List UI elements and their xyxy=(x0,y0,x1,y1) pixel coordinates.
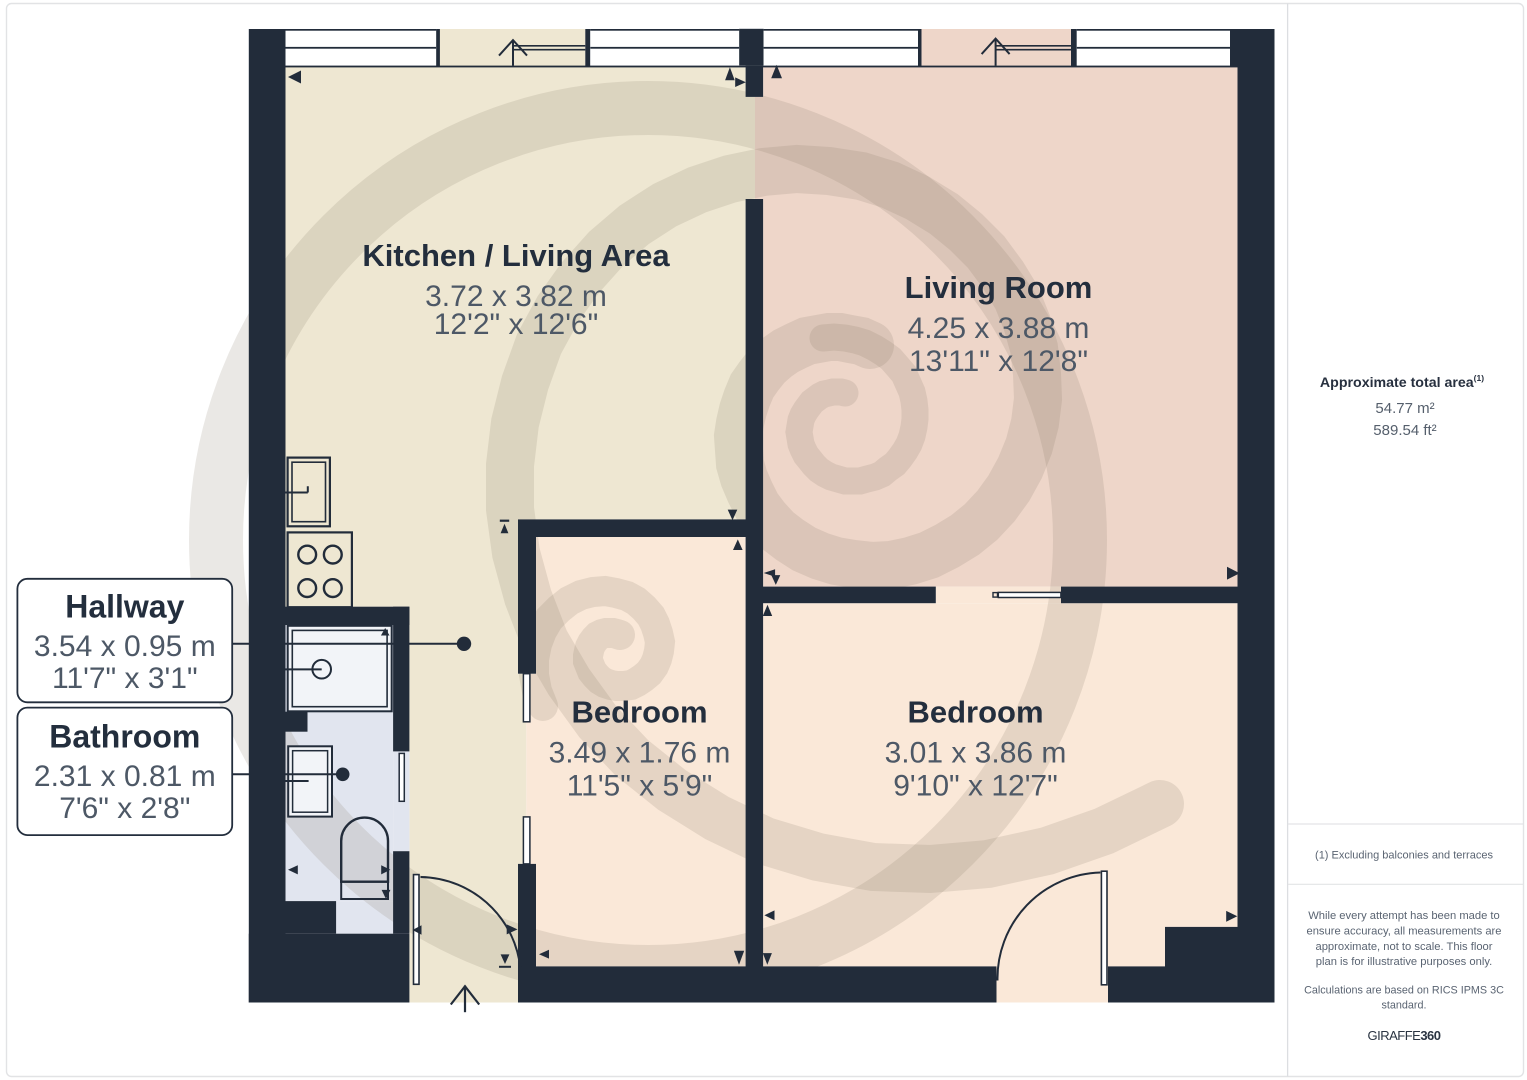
svg-text:plan is for illustrative purpo: plan is for illustrative purposes only. xyxy=(1316,956,1492,968)
svg-text:3.49 x 1.76 m: 3.49 x 1.76 m xyxy=(549,737,731,770)
svg-text:Bedroom: Bedroom xyxy=(571,695,707,730)
svg-text:9'10" x 12'7": 9'10" x 12'7" xyxy=(893,770,1058,803)
svg-text:11'7" x 3'1": 11'7" x 3'1" xyxy=(52,662,198,695)
svg-text:Calculations are based on RICS: Calculations are based on RICS IPMS 3C xyxy=(1304,984,1504,996)
svg-text:3.01 x 3.86 m: 3.01 x 3.86 m xyxy=(885,737,1067,770)
svg-text:4.25 x 3.88 m: 4.25 x 3.88 m xyxy=(908,312,1090,345)
svg-text:ensure accuracy, all measureme: ensure accuracy, all measurements are xyxy=(1306,925,1501,937)
svg-text:2.31 x 0.81 m: 2.31 x 0.81 m xyxy=(34,760,216,793)
svg-text:12'2" x 12'6": 12'2" x 12'6" xyxy=(434,308,599,341)
svg-text:Bedroom: Bedroom xyxy=(907,695,1043,730)
svg-text:GIRAFFE360: GIRAFFE360 xyxy=(1367,1028,1440,1043)
svg-text:54.77 m²: 54.77 m² xyxy=(1375,400,1434,417)
svg-text:589.54 ft²: 589.54 ft² xyxy=(1373,422,1436,439)
svg-text:Hallway: Hallway xyxy=(65,589,184,625)
svg-text:Bathroom: Bathroom xyxy=(49,719,200,755)
svg-text:standard.: standard. xyxy=(1381,1000,1426,1012)
svg-text:Kitchen / Living Area: Kitchen / Living Area xyxy=(362,238,670,273)
svg-text:13'11" x 12'8": 13'11" x 12'8" xyxy=(909,345,1088,378)
svg-text:approximate, not to scale. Thi: approximate, not to scale. This floor xyxy=(1315,941,1492,953)
svg-text:11'5" x 5'9": 11'5" x 5'9" xyxy=(567,770,713,803)
svg-text:3.54 x 0.95 m: 3.54 x 0.95 m xyxy=(34,630,216,663)
svg-text:7'6" x 2'8": 7'6" x 2'8" xyxy=(59,792,190,825)
svg-text:While every attempt has been m: While every attempt has been made to xyxy=(1308,910,1500,922)
svg-text:Approximate total area(1): Approximate total area(1) xyxy=(1320,373,1484,391)
svg-text:Living Room: Living Room xyxy=(905,270,1093,305)
svg-text:(1) Excluding balconies and te: (1) Excluding balconies and terraces xyxy=(1315,850,1493,862)
